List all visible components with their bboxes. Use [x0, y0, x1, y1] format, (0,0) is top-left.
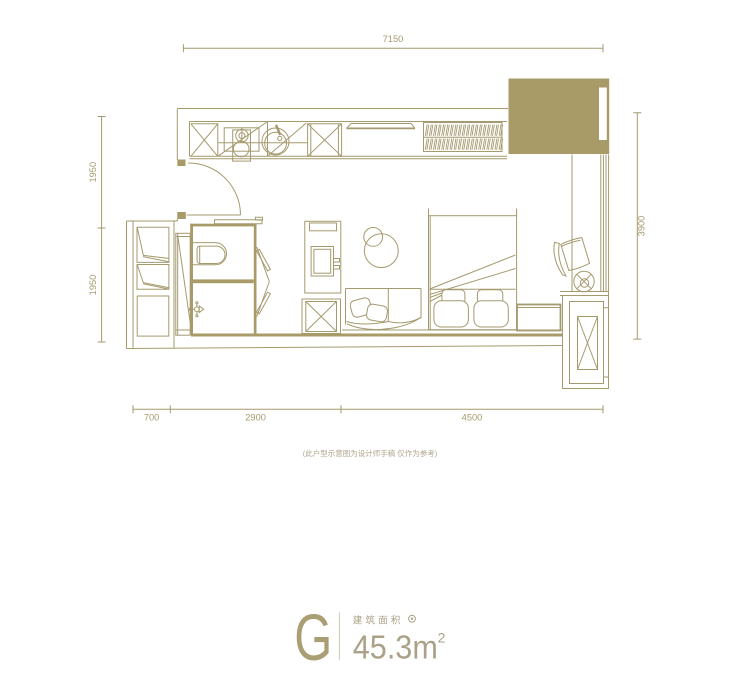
svg-text:45.3m: 45.3m [353, 629, 438, 666]
svg-text:G: G [294, 600, 332, 674]
svg-text:1950: 1950 [88, 275, 98, 296]
svg-text:2900: 2900 [245, 413, 266, 423]
svg-text:建筑面积: 建筑面积 [353, 615, 404, 627]
svg-text:2: 2 [438, 630, 446, 646]
svg-text:3900: 3900 [637, 216, 647, 237]
svg-text:1950: 1950 [88, 162, 98, 183]
svg-text:(此户型示意图为设计师手稿 仅作为参考): (此户型示意图为设计师手稿 仅作为参考) [303, 448, 438, 458]
svg-text:700: 700 [144, 413, 160, 423]
svg-text:7150: 7150 [383, 34, 404, 44]
svg-text:4500: 4500 [462, 413, 483, 423]
